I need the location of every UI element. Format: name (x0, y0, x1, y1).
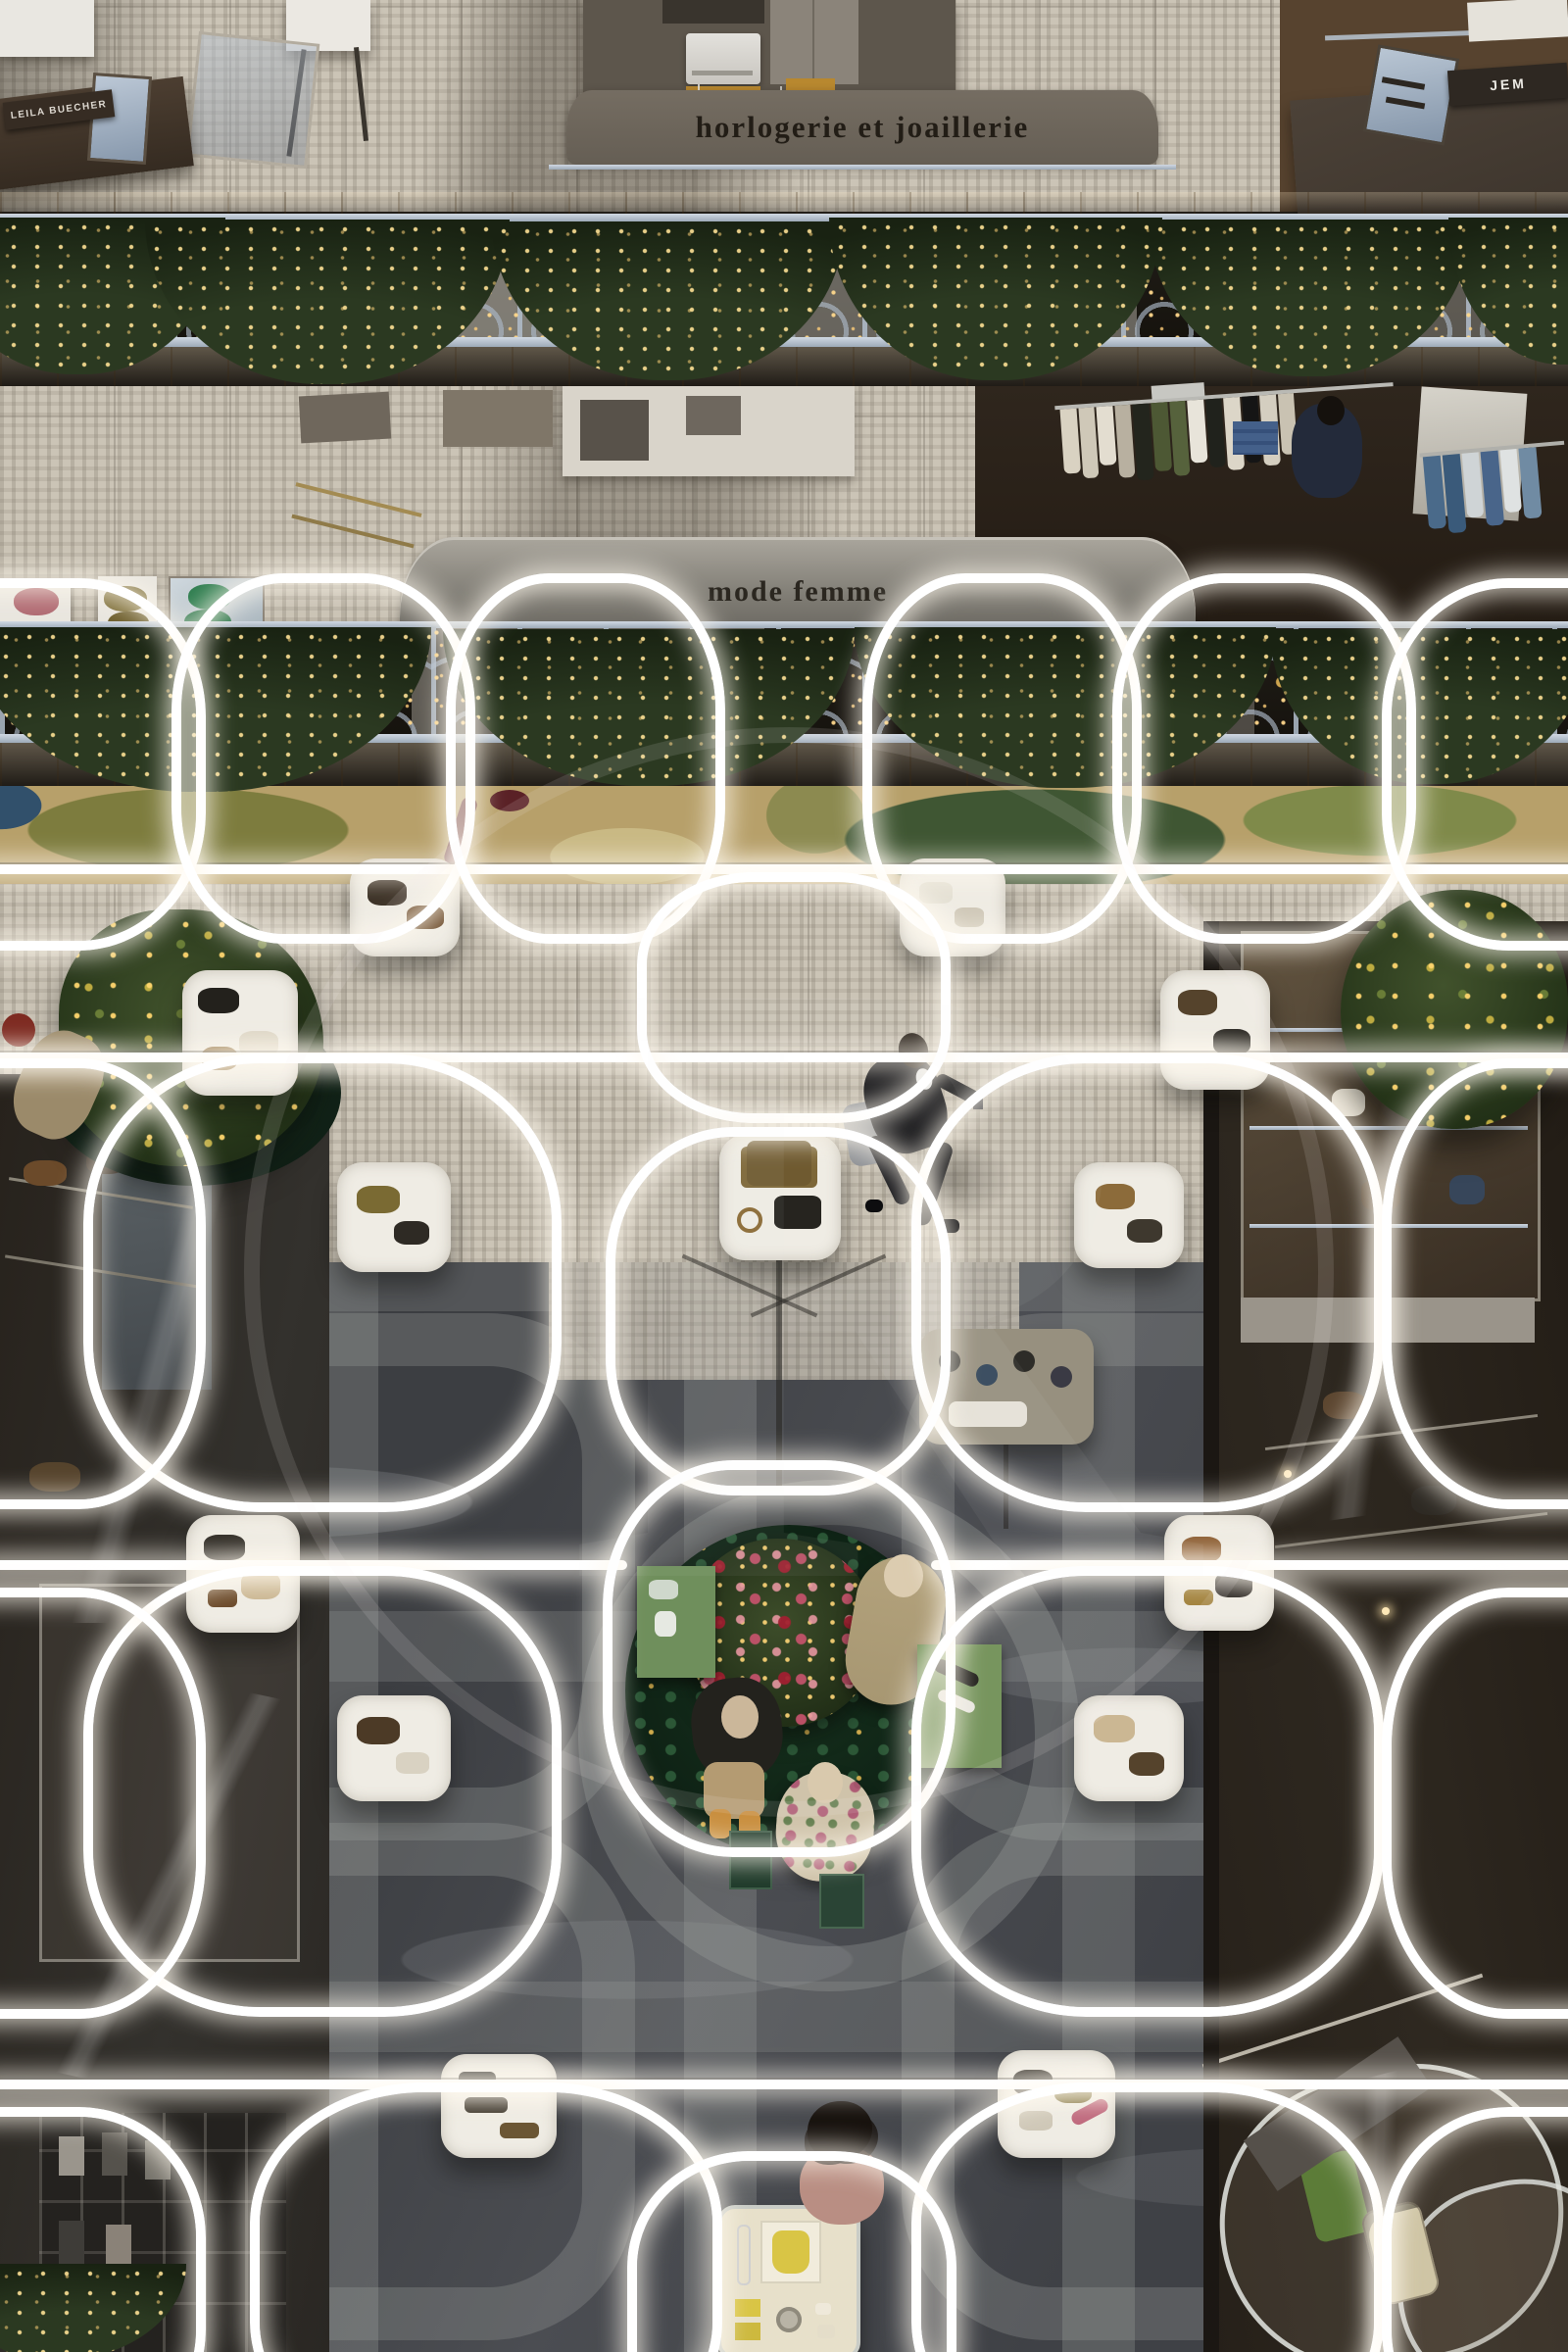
table-bag (1178, 990, 1217, 1015)
table-item (1019, 2111, 1053, 2131)
structural-column (1203, 921, 1219, 2352)
display-table (337, 1695, 451, 1801)
info-plaque (819, 1874, 864, 1929)
garment (1096, 406, 1116, 465)
department-banner-middle-label: mode femme (708, 575, 888, 609)
eyewear-tray (949, 1401, 1027, 1427)
metal-rail (1202, 1974, 1484, 2069)
table-bag (1094, 1715, 1135, 1742)
counter-dark-panel (662, 0, 764, 24)
leathergoods-shop-right (1205, 921, 1568, 2352)
spotlight-dot (1382, 1607, 1390, 1615)
department-banner-upper-label: horlogerie et joaillerie (696, 110, 1030, 145)
display-table (1074, 1162, 1184, 1268)
hanging-wallet (59, 2221, 84, 2264)
printer-slot (692, 71, 753, 75)
hanging-wallet (145, 2140, 171, 2180)
counter-cabinet-seam (812, 0, 814, 84)
table-bag (1129, 1752, 1164, 1776)
eyewear-display-table (919, 1329, 1094, 1445)
display-table-tote (719, 1135, 841, 1260)
brand-placard-right-label: JEM (1490, 75, 1528, 94)
table-bag (204, 1535, 245, 1560)
display-table (1160, 970, 1270, 1090)
store-atrium-photo: LEILA BUECHER horlogerie et joaillerie J… (0, 0, 1568, 2352)
low-counter (299, 392, 391, 444)
christmas-tree-right (1341, 890, 1568, 1129)
display-table (900, 858, 1005, 956)
display-table (182, 970, 298, 1096)
mannequin-head (884, 1554, 923, 1597)
watch-item (776, 2307, 802, 2332)
table-bag (241, 1572, 280, 1599)
yellow-jewellery-form (772, 2230, 809, 2274)
table-bag (407, 906, 444, 929)
table-bag (774, 1196, 821, 1229)
table-bag (198, 988, 239, 1013)
suspension-rod (0, 1051, 1568, 1053)
eyewear-knob (1051, 1366, 1072, 1388)
garment-denim (1518, 447, 1542, 518)
hanging-wallet (59, 2136, 84, 2176)
table-bag (1096, 1184, 1135, 1209)
table-bag (1054, 2080, 1092, 2103)
table-bag (1127, 1219, 1162, 1243)
display-table (186, 1515, 300, 1633)
folded-jeans-stack (1233, 421, 1278, 455)
sales-associate-hair (1317, 396, 1345, 425)
table-item (465, 2097, 508, 2113)
pedestal-items (655, 1611, 676, 1637)
display-table (1164, 1515, 1274, 1631)
shelf-bag (24, 1160, 67, 1186)
patterned-carpet (0, 786, 1568, 884)
yellow-box (735, 2299, 760, 2317)
small-charm (815, 2303, 831, 2315)
white-table-top-right (1467, 0, 1568, 42)
table-item (396, 1752, 429, 1774)
garment (1060, 409, 1082, 474)
banner-rail-edge (549, 165, 1176, 170)
department-banner-upper: horlogerie et joaillerie (566, 90, 1158, 165)
shopper-walking (838, 1017, 1053, 1262)
garment (1187, 400, 1207, 464)
garment (1205, 398, 1226, 467)
balustrade-handrail-1 (0, 192, 1568, 214)
suspension-rod (0, 2078, 1568, 2081)
low-counter (443, 390, 553, 447)
display-table (1074, 1695, 1184, 1801)
table-pole (1004, 1445, 1008, 1529)
shelf-bag (1323, 1392, 1366, 1419)
mirror-stand-frame (186, 31, 320, 169)
yellow-box (735, 2323, 760, 2340)
mannequin-tan-boots (710, 1809, 731, 1838)
info-plaque (729, 1831, 772, 1889)
necklace-chain (737, 2225, 751, 2285)
shopper-phone (973, 1096, 983, 1109)
table-item (955, 907, 984, 927)
table-bag (1013, 2070, 1053, 2095)
small-charm (817, 2325, 835, 2338)
brand-placard-left-label: LEILA BUECHER (10, 99, 108, 122)
table-bag (357, 1186, 400, 1213)
shelf-cabinet-cubby (686, 396, 741, 435)
table-bag (1215, 1572, 1252, 1597)
denim-rack (1419, 437, 1568, 544)
green-pouch-bag (188, 584, 231, 610)
table-bag (367, 880, 407, 906)
mannequin-head (721, 1695, 759, 1739)
shelf-bag (1411, 1486, 1456, 1515)
suspension-rod (0, 862, 1568, 865)
case-base (1241, 1298, 1535, 1343)
white-table-top-left-corner (0, 0, 94, 57)
eyewear-knob (1013, 1350, 1035, 1372)
table-bag (394, 1221, 429, 1245)
table-bag (1182, 1537, 1221, 1562)
table-wallet (208, 1590, 237, 1607)
display-table (998, 2050, 1115, 2158)
table-bracelet (737, 1207, 762, 1233)
shelf-cabinet-cubby (580, 400, 649, 461)
spotlight-dot (1284, 1470, 1292, 1478)
display-table (441, 2054, 557, 2158)
table-item (500, 2123, 539, 2138)
shopper-pink-top (782, 2097, 919, 2234)
hanging-wallet (102, 2132, 127, 2176)
eyewear-knob (976, 1364, 998, 1386)
table-bag (357, 1717, 400, 1744)
table-pole (776, 1258, 782, 1494)
shopper-shoe (940, 1219, 959, 1233)
glass-reflection (1185, 2040, 1568, 2352)
carpet-maroon-dot (490, 790, 529, 811)
canvas-tote-bag (747, 1141, 811, 1186)
eyewear-knob (939, 1350, 960, 1372)
pedestal-items (649, 1580, 678, 1599)
printer (686, 33, 760, 84)
display-table (350, 858, 460, 956)
counter-cabinet-doors (770, 0, 858, 84)
table-wallet (1184, 1590, 1213, 1605)
shelf-bag (29, 1462, 80, 1492)
garment (1151, 402, 1172, 471)
shopper-red-hat (2, 1013, 35, 1047)
table-item (919, 882, 953, 904)
olive-pouch-bag (104, 586, 147, 612)
shopper-shoe (865, 1200, 883, 1212)
hanging-wallet (106, 2225, 131, 2264)
display-table (337, 1162, 451, 1272)
leathergoods-shop-left (0, 1074, 329, 2352)
jem-mirror (1363, 44, 1459, 145)
pink-pouch-bag (14, 588, 59, 615)
mannequin-head (808, 1762, 843, 1803)
